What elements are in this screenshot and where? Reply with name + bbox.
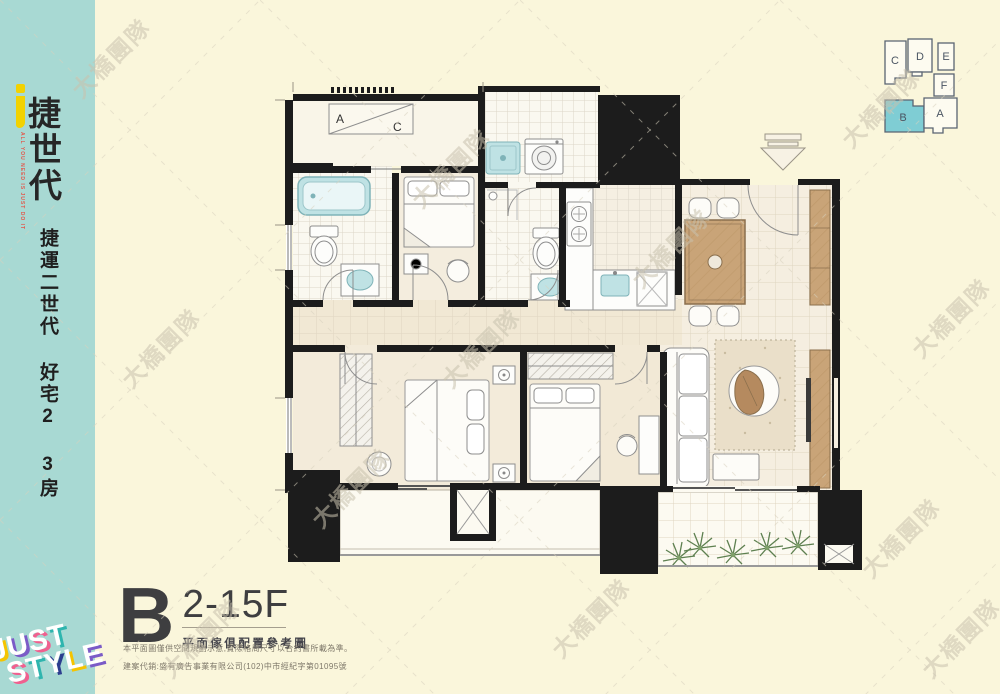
round-chair [367, 452, 391, 476]
dining-chair [689, 306, 711, 326]
brand-logo: 捷 ALL YOU NEED IS JUST DO IT 世 代 [16, 84, 62, 202]
key-plan-label-B: B [899, 112, 906, 124]
laundry [486, 139, 563, 174]
tv [806, 378, 811, 442]
dining-chair [717, 306, 739, 326]
floor-range: 2-15F [182, 588, 308, 621]
ac-box: A C [329, 104, 413, 134]
poster-page: 捷 ALL YOU NEED IS JUST DO IT 世 代 捷運二世代 好… [0, 0, 1000, 694]
coffee-table [713, 454, 759, 480]
disclaimer-line-2: 建案代銷:盛有廣告事業有限公司(102)中市經紀字第01095號 [123, 658, 352, 676]
ac-label-a: A [336, 112, 344, 126]
brand-char-2: 世 [29, 133, 62, 166]
vertical-slogan: 捷運二世代 好宅2 3房 [34, 228, 61, 500]
brand-char-1: 捷 [28, 97, 61, 130]
disclaimer-line-1: 本平面圖僅供空間規劃示意,實際格局尺寸以合約書所載為準。 [123, 640, 352, 658]
key-plan-label-A: A [936, 108, 944, 120]
desk [639, 416, 659, 474]
kitchen-sink [601, 275, 629, 296]
key-plan-label-D: D [916, 51, 924, 63]
disclaimers: 本平面圖僅供空間規劃示意,實際格局尺寸以合約書所載為準。 建案代銷:盛有廣告事業… [123, 640, 352, 676]
brand-tagline: ALL YOU NEED IS JUST DO IT [19, 132, 25, 230]
toilet-tank [310, 226, 338, 237]
unit-letter: B [118, 586, 172, 645]
dining-chair [689, 198, 711, 218]
ac-label-c: C [393, 120, 402, 134]
title-divider [182, 627, 286, 628]
sidebar: 捷 ALL YOU NEED IS JUST DO IT 世 代 捷運二世代 好… [0, 0, 95, 694]
key-plan: C D E F B A [876, 34, 968, 140]
key-plan-label-F: F [941, 80, 948, 92]
floor-plan: A C [265, 78, 875, 598]
brand-char-3: 代 [29, 169, 62, 202]
key-plan-label-E: E [942, 51, 949, 63]
key-plan-label-C: C [891, 55, 899, 67]
brand-accent-j-icon [16, 84, 25, 128]
watermark: 大橋團隊 [903, 270, 998, 365]
watermark: 大橋團隊 [913, 590, 1000, 685]
dining-chair [717, 198, 739, 218]
sink [347, 270, 373, 290]
watermark: 大橋團隊 [113, 300, 208, 395]
just-style-logo: JUST STYLE [0, 615, 106, 689]
chair [447, 260, 469, 282]
desk-chair [617, 436, 637, 456]
entrance-arrow-icon [761, 134, 805, 170]
